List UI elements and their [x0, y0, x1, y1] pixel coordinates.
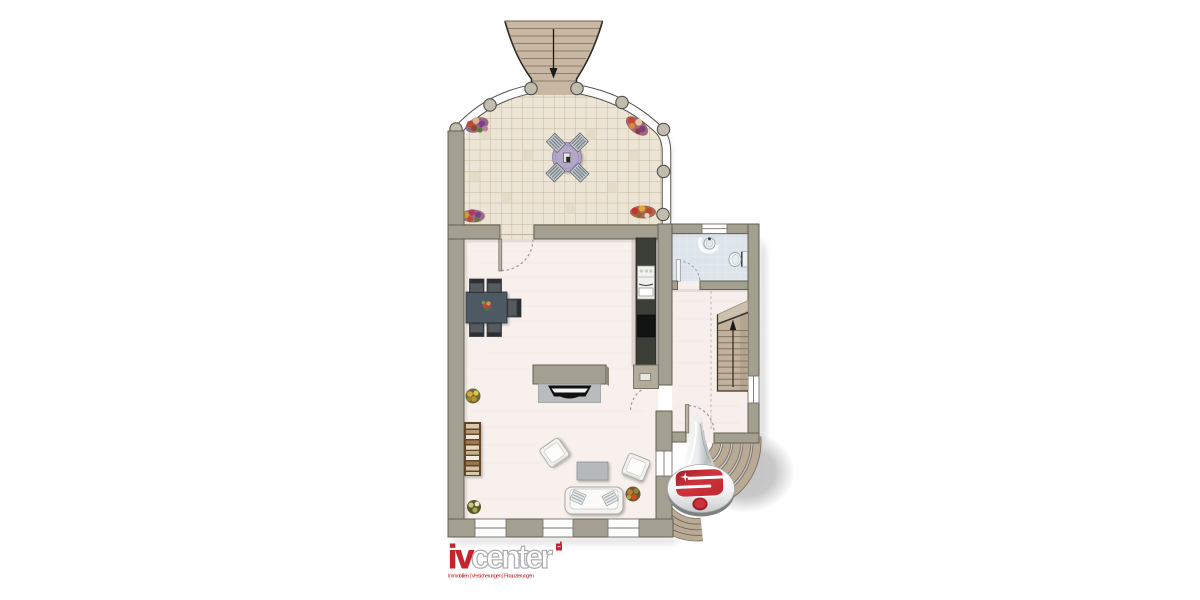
- svg-text:Immobilien | Versicherungen: Immobilien | Versicherungen | Finanzieru…: [448, 574, 534, 580]
- svg-text:center: center: [471, 538, 553, 575]
